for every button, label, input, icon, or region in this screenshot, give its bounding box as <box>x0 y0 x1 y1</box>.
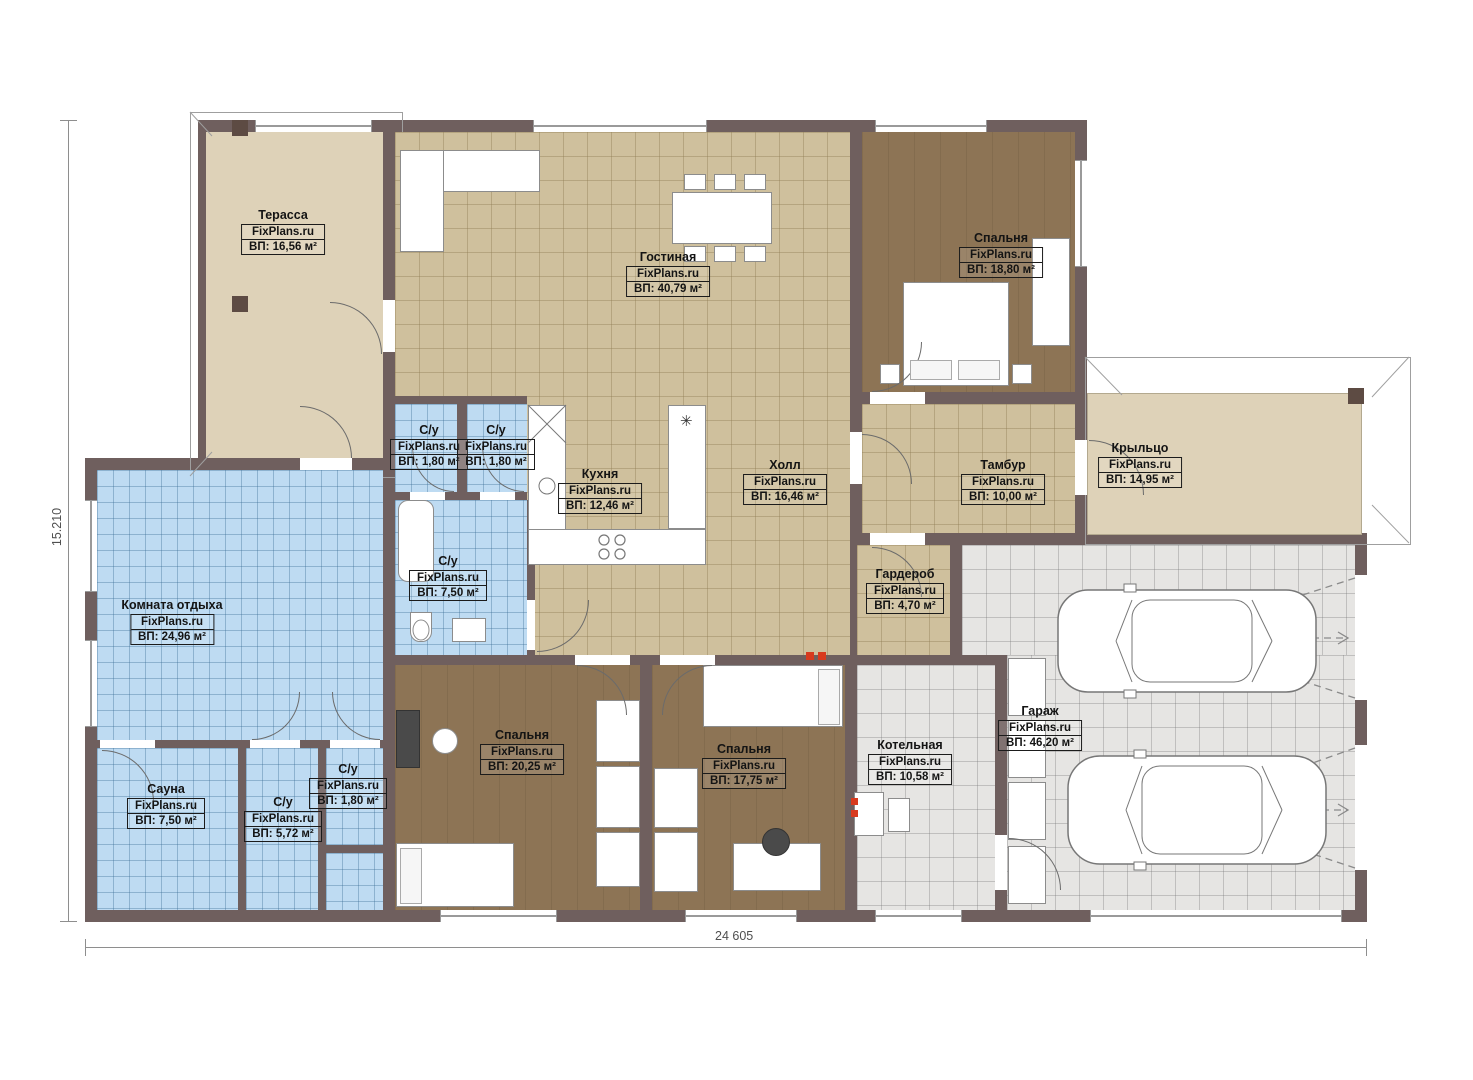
room-area: ВП: 1,80 м² <box>310 794 386 808</box>
porch-post <box>1348 388 1364 404</box>
room-label-kitchen: Кухня FixPlans.ru ВП: 12,46 м² <box>558 467 642 514</box>
door-opening <box>300 458 352 470</box>
room-name: Спальня <box>702 742 786 756</box>
dimension-bottom-value: 24 605 <box>715 929 753 943</box>
window <box>875 910 962 922</box>
room-garage <box>1007 655 1355 910</box>
chair <box>714 174 736 190</box>
room-boiler <box>857 665 995 910</box>
nightstand <box>1012 364 1032 384</box>
shelf <box>654 832 698 892</box>
watermark: FixPlans.ru <box>962 475 1044 490</box>
watermark: FixPlans.ru <box>458 440 534 455</box>
room-area: ВП: 10,58 м² <box>869 770 951 784</box>
room-name: Комната отдыха <box>121 598 222 612</box>
chair <box>714 246 736 262</box>
watermark: FixPlans.ru <box>1099 458 1181 473</box>
shelf <box>654 768 698 828</box>
sofa <box>400 150 444 252</box>
watermark: FixPlans.ru <box>242 225 324 240</box>
dimension-line-bottom <box>85 947 1367 948</box>
window <box>85 640 97 727</box>
watermark: FixPlans.ru <box>128 799 204 814</box>
door-opening <box>100 740 155 748</box>
room-area: ВП: 16,56 м² <box>242 240 324 254</box>
utility-marker <box>806 652 814 660</box>
toilet <box>410 612 432 642</box>
door-opening <box>660 655 715 665</box>
room-area: ВП: 20,25 м² <box>481 760 563 774</box>
desk <box>396 710 420 768</box>
watermark: FixPlans.ru <box>310 779 386 794</box>
window <box>685 910 797 922</box>
door-opening <box>527 600 535 650</box>
garage-door-right <box>1355 745 1367 870</box>
door-opening <box>870 392 925 404</box>
room-area: ВП: 17,75 м² <box>703 774 785 788</box>
watermark: FixPlans.ru <box>960 248 1042 263</box>
chair <box>744 174 766 190</box>
room-name: Спальня <box>959 231 1043 245</box>
pillow <box>400 848 422 904</box>
door-opening <box>870 533 925 545</box>
room-name: Сауна <box>127 782 205 796</box>
dimension-line-left <box>68 120 69 922</box>
door-opening <box>1075 440 1087 495</box>
room-wc-pocket <box>326 853 383 910</box>
utility-marker <box>851 798 858 805</box>
room-label-bedroom-right: Спальня FixPlans.ru ВП: 17,75 м² <box>702 742 786 789</box>
desk-chair <box>432 728 458 754</box>
room-label-bedroom-top: Спальня FixPlans.ru ВП: 18,80 м² <box>959 231 1043 278</box>
room-label-sauna: Сауна FixPlans.ru ВП: 7,50 м² <box>127 782 205 829</box>
door-opening <box>330 740 380 748</box>
room-name: Спальня <box>480 728 564 742</box>
room-area: ВП: 7,50 м² <box>410 586 486 600</box>
sink <box>452 618 486 642</box>
room-name: Кухня <box>558 467 642 481</box>
utility-marker <box>818 652 826 660</box>
room-terrace <box>206 132 383 458</box>
garage-cabinet <box>1008 782 1046 840</box>
watermark: FixPlans.ru <box>867 584 943 599</box>
shelf <box>596 766 640 828</box>
room-label-hall: Холл FixPlans.ru ВП: 16,46 м² <box>743 458 827 505</box>
kitchen-counter <box>528 529 706 565</box>
door-opening <box>410 492 445 500</box>
room-label-living: Гостиная FixPlans.ru ВП: 40,79 м² <box>626 250 710 297</box>
watermark: FixPlans.ru <box>131 615 213 630</box>
room-name: Котельная <box>868 738 952 752</box>
room-area: ВП: 40,79 м² <box>627 282 709 296</box>
room-name: С/у <box>457 423 535 437</box>
dimension-left-value: 15.210 <box>50 508 64 546</box>
room-area: ВП: 14,95 м² <box>1099 473 1181 487</box>
terrace-post <box>232 296 248 312</box>
garage-door-right <box>1355 575 1367 700</box>
room-label-garage: Гараж FixPlans.ru ВП: 46,20 м² <box>998 704 1082 751</box>
watermark: FixPlans.ru <box>627 267 709 282</box>
chair <box>744 246 766 262</box>
vent-icon: ✳ <box>680 412 693 430</box>
room-area: ВП: 4,70 м² <box>867 599 943 613</box>
room-label-bedroom-left: Спальня FixPlans.ru ВП: 20,25 м² <box>480 728 564 775</box>
room-area: ВП: 1,80 м² <box>458 455 534 469</box>
watermark: FixPlans.ru <box>999 721 1081 736</box>
window <box>1075 160 1087 267</box>
room-area: ВП: 16,46 м² <box>744 490 826 504</box>
watermark: FixPlans.ru <box>245 812 321 827</box>
room-label-porch: Крыльцо FixPlans.ru ВП: 14,95 м² <box>1098 441 1182 488</box>
room-area: ВП: 10,00 м² <box>962 490 1044 504</box>
room-name: Крыльцо <box>1098 441 1182 455</box>
watermark: FixPlans.ru <box>703 759 785 774</box>
watermark: FixPlans.ru <box>481 745 563 760</box>
pillow <box>958 360 1000 380</box>
door-opening <box>250 740 300 748</box>
watermark: FixPlans.ru <box>391 440 467 455</box>
room-label-wc2: С/у FixPlans.ru ВП: 1,80 м² <box>457 423 535 470</box>
room-name: Гардероб <box>866 567 944 581</box>
door-opening <box>575 655 630 665</box>
room-label-wc-180c: С/у FixPlans.ru ВП: 1,80 м² <box>309 762 387 809</box>
room-label-boiler: Котельная FixPlans.ru ВП: 10,58 м² <box>868 738 952 785</box>
dimension-tick <box>60 120 77 121</box>
room-label-bath: С/у FixPlans.ru ВП: 7,50 м² <box>409 554 487 601</box>
room-name: С/у <box>309 762 387 776</box>
dimension-tick <box>85 939 86 956</box>
door-opening <box>480 492 515 500</box>
room-garage-upper <box>962 545 1355 655</box>
utility-marker <box>851 810 858 817</box>
room-area: ВП: 12,46 м² <box>559 499 641 513</box>
window <box>875 120 987 132</box>
room-name: Терасса <box>241 208 325 222</box>
window <box>255 120 372 132</box>
pillow <box>910 360 952 380</box>
boiler-unit <box>888 798 910 832</box>
pillow <box>818 669 840 725</box>
room-label-terrace: Терасса FixPlans.ru ВП: 16,56 м² <box>241 208 325 255</box>
wall-patch <box>395 396 527 404</box>
room-area: ВП: 46,20 м² <box>999 736 1081 750</box>
garage-door-bottom <box>1090 910 1342 922</box>
door-opening <box>995 835 1007 890</box>
room-name: Гостиная <box>626 250 710 264</box>
desk-chair <box>762 828 790 856</box>
door-opening <box>383 300 395 352</box>
room-name: Холл <box>743 458 827 472</box>
chair <box>684 174 706 190</box>
room-name: Гараж <box>998 704 1082 718</box>
dimension-tick <box>60 921 77 922</box>
room-area: ВП: 18,80 м² <box>960 263 1042 277</box>
dining-table <box>672 192 772 244</box>
window <box>440 910 557 922</box>
watermark: FixPlans.ru <box>869 755 951 770</box>
room-label-rest: Комната отдыха FixPlans.ru ВП: 24,96 м² <box>121 598 222 645</box>
terrace-post <box>232 120 248 136</box>
watermark: FixPlans.ru <box>410 571 486 586</box>
window <box>533 120 707 132</box>
watermark: FixPlans.ru <box>559 484 641 499</box>
door-opening <box>850 432 862 484</box>
window <box>85 500 97 592</box>
room-area: ВП: 1,80 м² <box>391 455 467 469</box>
room-label-wardrobe: Гардероб FixPlans.ru ВП: 4,70 м² <box>866 567 944 614</box>
room-name: Тамбур <box>961 458 1045 472</box>
room-name: С/у <box>409 554 487 568</box>
room-label-tambour: Тамбур FixPlans.ru ВП: 10,00 м² <box>961 458 1045 505</box>
dimension-tick <box>1366 939 1367 956</box>
shelf <box>596 832 640 887</box>
watermark: FixPlans.ru <box>744 475 826 490</box>
floor-plan: ✳ <box>0 0 1473 1080</box>
boiler-unit <box>854 792 884 836</box>
room-area: ВП: 7,50 м² <box>128 814 204 828</box>
room-area: ВП: 24,96 м² <box>131 630 213 644</box>
room-area: ВП: 5,72 м² <box>245 827 321 841</box>
